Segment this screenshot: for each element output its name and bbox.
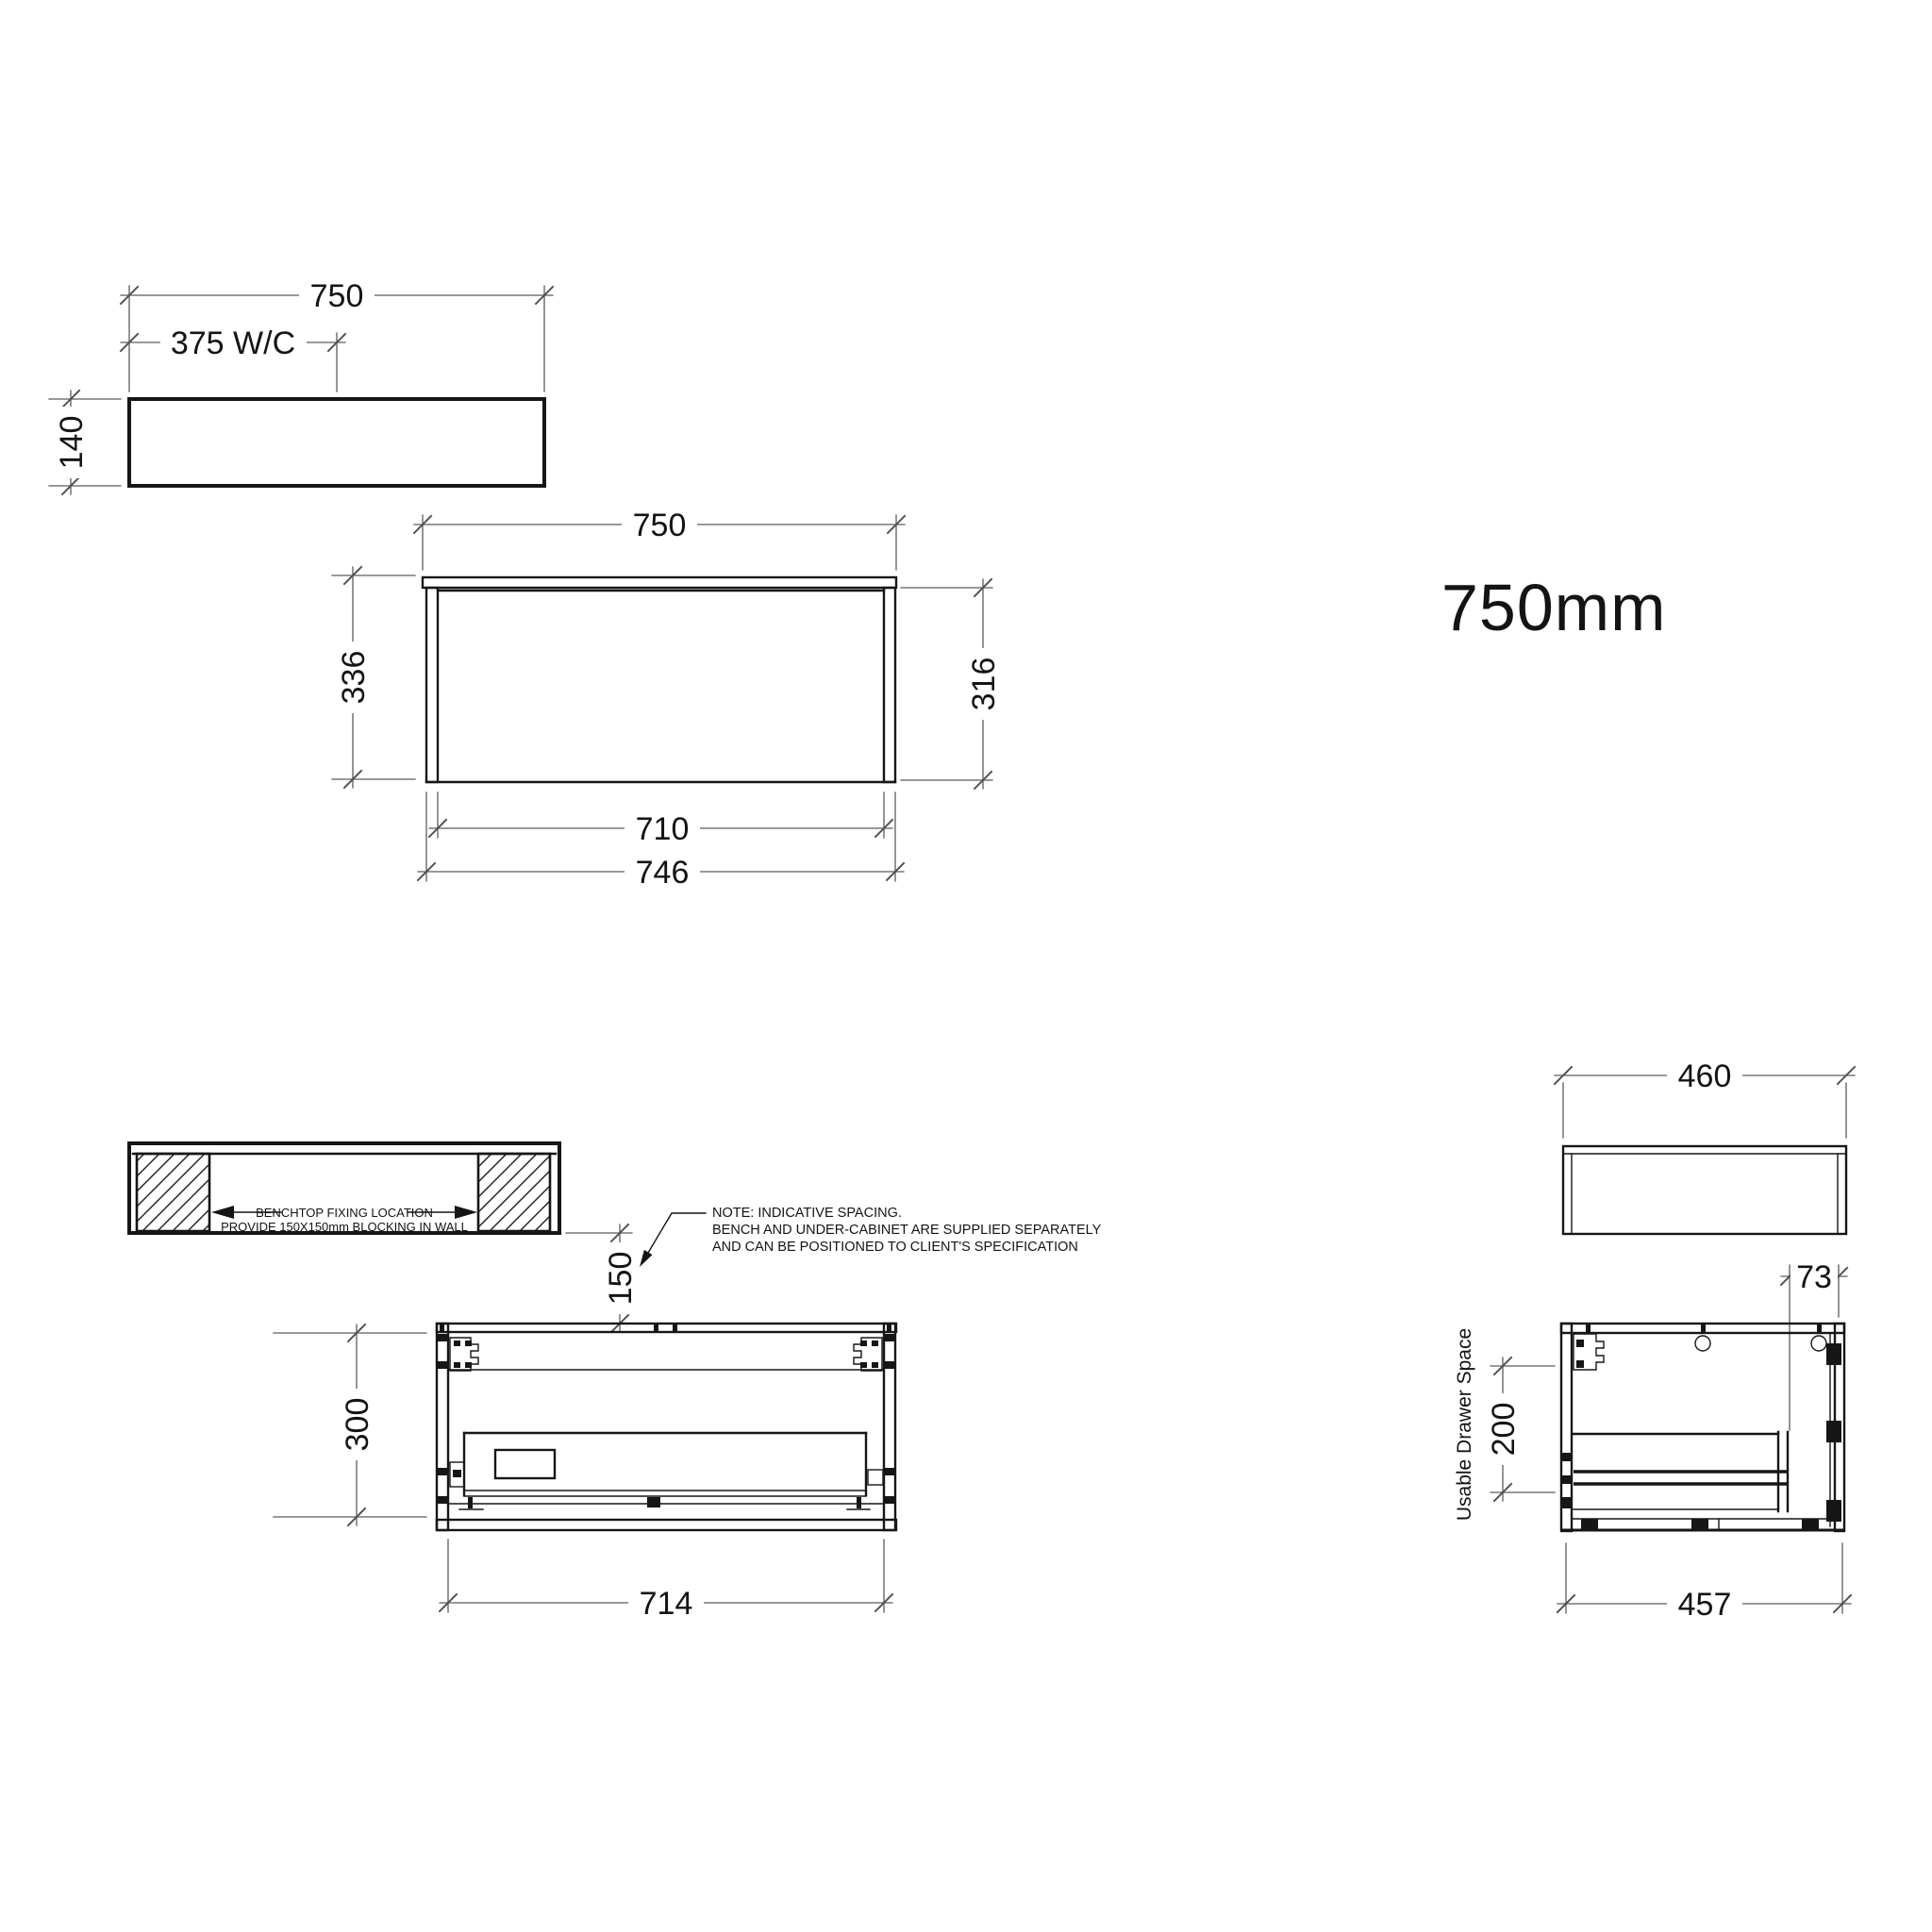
cabinet-top-panel — [437, 1324, 896, 1332]
dim-waste-centre: 375 W/C — [121, 325, 345, 361]
dim-cabinet-section-height: 300 — [274, 1324, 426, 1525]
dim-usable-drawer-height: 200 — [1486, 1357, 1555, 1501]
blocking-hatch-left — [137, 1154, 209, 1231]
front-benchtop-edge — [423, 577, 896, 588]
dim-text-benchtop-thickness: 140 — [54, 416, 90, 470]
dim-cabinet-section-width: 714 — [440, 1540, 892, 1622]
page-title: 750mm — [1441, 571, 1666, 644]
dim-text-cabinet-height: 316 — [966, 658, 1002, 711]
dim-text-offset: 73 — [1796, 1259, 1832, 1295]
benchtop-plan-view: 750 375 W/C 140 — [49, 278, 553, 494]
screw-head-icon — [1811, 1336, 1826, 1351]
dim-text-gap: 150 — [603, 1252, 639, 1306]
dim-text-front-width: 750 — [633, 508, 687, 543]
drawer-cutout — [495, 1450, 555, 1478]
front-elevation-view: 750 336 316 — [332, 508, 1002, 891]
dim-text-overall-height: 336 — [336, 651, 372, 705]
drawer-front-section — [450, 1433, 883, 1496]
dim-gap-150: 150 — [603, 1224, 639, 1332]
fixing-plan-view: BENCHTOP FIXING LOCATION PROVIDE 150X150… — [129, 1143, 559, 1234]
screw-head-icon — [1695, 1336, 1710, 1351]
note-line1: NOTE: INDICATIVE SPACING. — [712, 1206, 902, 1221]
dim-overall-height: 336 — [332, 567, 415, 788]
cad-drawing: 750 375 W/C 140 — [0, 0, 1932, 1932]
note-line3: AND CAN BE POSITIONED TO CLIENT'S SPECIF… — [712, 1240, 1078, 1255]
dim-inner-width: 710 — [429, 792, 892, 847]
dim-front-width: 750 — [414, 508, 905, 570]
note-line2: BENCH AND UNDER-CABINET ARE SUPPLIED SEP… — [712, 1223, 1102, 1238]
benchtop-plan-outline — [129, 399, 544, 486]
front-left-panel — [426, 588, 438, 782]
dim-benchtop-width: 750 — [121, 278, 553, 314]
note-leader — [640, 1213, 706, 1267]
dim-text-side-depth: 460 — [1678, 1058, 1732, 1094]
fixing-label-line2: PROVIDE 150X150mm BLOCKING IN WALL — [221, 1220, 468, 1234]
dim-text-benchtop-width: 750 — [310, 278, 364, 314]
dim-text-body-width: 746 — [636, 855, 690, 891]
cabinet-bottom-panel — [437, 1520, 896, 1530]
front-right-panel — [884, 588, 895, 782]
dim-text-waste-centre: 375 W/C — [171, 325, 295, 361]
fixing-label-line1: BENCHTOP FIXING LOCATION — [256, 1206, 433, 1220]
dim-benchtop-thickness: 140 — [49, 391, 121, 494]
dim-text-side-section-depth: 457 — [1678, 1587, 1732, 1623]
dim-text-section-height: 300 — [340, 1398, 375, 1452]
spacing-note-group: 150 NOTE: INDICATIVE SPACING. BENCH AND … — [566, 1206, 1102, 1332]
dim-text-drawer-height: 200 — [1486, 1403, 1522, 1457]
blocking-hatch-right — [478, 1154, 550, 1231]
cabinet-side-section-view: Usable Drawer Space — [1454, 1323, 1851, 1623]
dim-text-inner-width: 710 — [636, 811, 690, 847]
usable-drawer-space-label: Usable Drawer Space — [1454, 1328, 1475, 1521]
drawer-side-section — [1574, 1432, 1788, 1511]
dim-cabinet-height: 316 — [901, 579, 1002, 789]
dim-text-section-width: 714 — [640, 1586, 693, 1622]
cabinet-front-section-view: 300 714 — [274, 1323, 896, 1622]
side-plan-outline — [1563, 1146, 1846, 1234]
side-plan-view: 460 — [1555, 1058, 1855, 1234]
dim-side-section-depth: 457 — [1557, 1543, 1851, 1623]
drawing-sheet: 750 375 W/C 140 — [0, 0, 1932, 1932]
dim-side-depth: 460 — [1555, 1058, 1855, 1138]
